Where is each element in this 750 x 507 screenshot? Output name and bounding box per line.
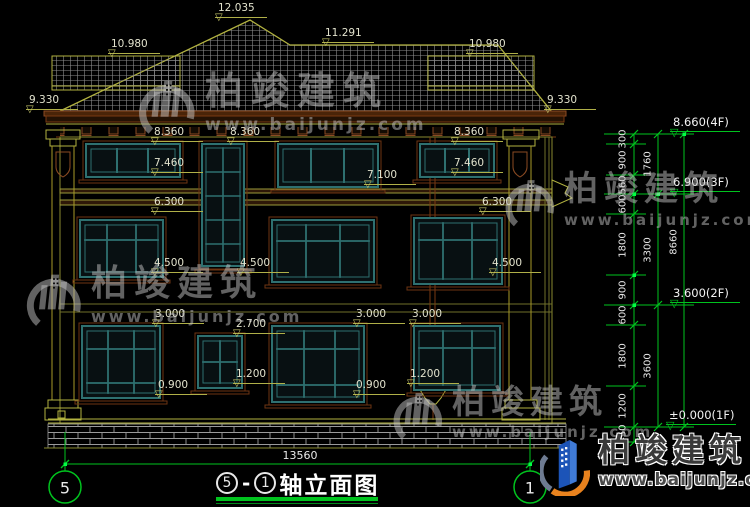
title-axis-circle-a: 5 [216,472,238,494]
watermark: 柏竣建筑 www.baijunjz.com [26,266,302,332]
footer-logo-icon [540,434,590,496]
title-axis-circle-b: 1 [254,472,276,494]
axis-bubble-left-label: 5 [60,479,70,498]
axis-bubble-right-label: 1 [525,479,535,498]
watermark-url: www.baijunjz.com [564,211,750,229]
watermark-logo-icon [393,385,443,445]
watermark-logo-icon [505,172,555,232]
watermark: 柏竣建筑 www.baijunjz.com [505,172,750,232]
overall-width-dim: 13560 [270,449,330,462]
footer-logo-url: www.baijunjz.com [598,470,750,490]
cad-elevation-screenshot: 12.035▽10.980▽11.291▽10.980▽9.330▽9.330▽… [0,0,750,507]
watermark-brand: 柏竣建筑 [205,72,427,110]
title-separator: - [242,471,250,495]
footer-logo: 柏竣建筑 www.baijunjz.com [540,434,750,496]
watermark-url: www.baijunjz.com [91,307,302,326]
watermark-url: www.baijunjz.com [205,115,427,135]
watermark-logo-icon [138,72,196,140]
drawing-title: 5 - 1 轴立面图 [216,466,379,500]
watermark-brand: 柏竣建筑 [452,385,653,418]
watermark-brand: 柏竣建筑 [564,172,750,206]
watermark: 柏竣建筑 www.baijunjz.com [138,72,427,140]
watermark-brand: 柏竣建筑 [91,266,302,302]
title-text: 轴立面图 [279,466,379,500]
footer-logo-brand: 柏竣建筑 [598,434,750,466]
watermark-logo-icon [26,266,82,332]
